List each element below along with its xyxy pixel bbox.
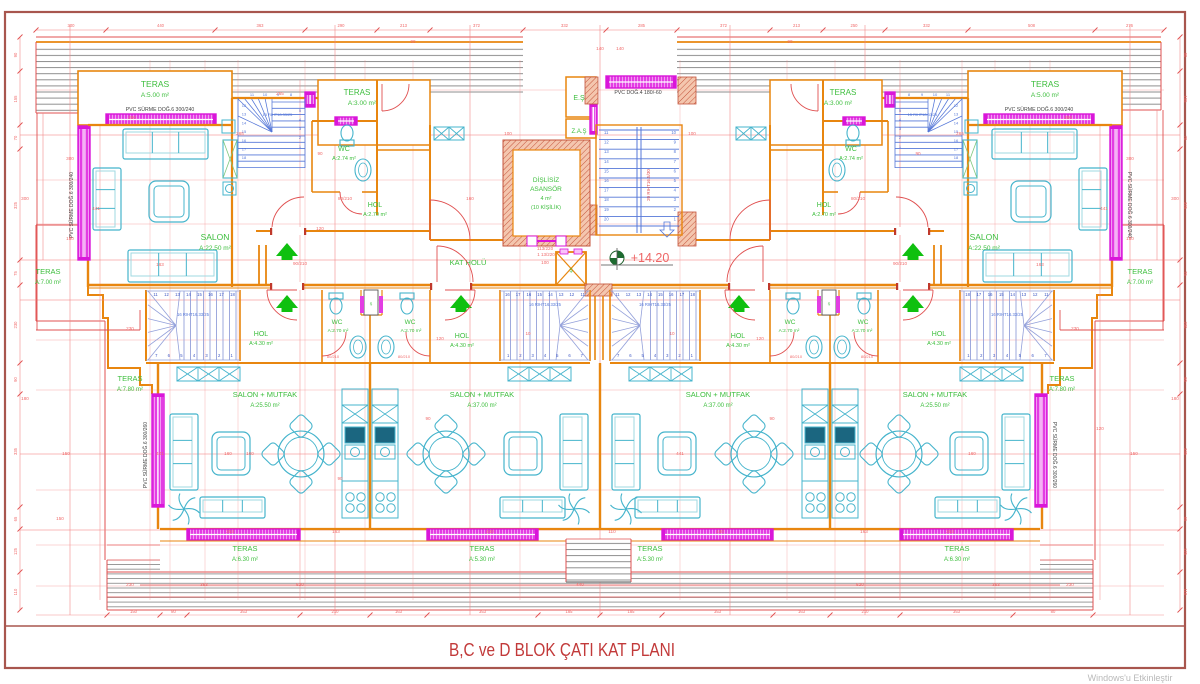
svg-text:180: 180 [21, 396, 29, 401]
svg-text:90: 90 [787, 39, 793, 44]
svg-text:353: 353 [946, 529, 954, 534]
svg-text:17: 17 [516, 292, 521, 297]
svg-text:325: 325 [13, 201, 18, 209]
svg-text:A:25.50 m²: A:25.50 m² [920, 403, 949, 409]
svg-text:16: 16 [527, 292, 532, 297]
svg-text:Windows'u Etkinleştir: Windows'u Etkinleştir [1088, 673, 1173, 683]
svg-text:440: 440 [576, 582, 584, 587]
svg-text:A:4.30 m²: A:4.30 m² [927, 341, 951, 347]
svg-text:TERAS: TERAS [469, 544, 494, 553]
svg-text:TERAS: TERAS [1049, 374, 1074, 383]
svg-text:A:3.00 m²: A:3.00 m² [824, 100, 853, 107]
svg-text:16: 16 [988, 292, 993, 297]
svg-text:125: 125 [1183, 548, 1188, 556]
svg-text:90: 90 [915, 151, 921, 156]
svg-text:300: 300 [1126, 156, 1134, 161]
svg-text:B,C ve D BLOK ÇATI KAT PLANI: B,C ve D BLOK ÇATI KAT PLANI [449, 639, 675, 660]
svg-text:A:3.00 m²: A:3.00 m² [348, 100, 377, 107]
svg-text:A:2.70 m²: A:2.70 m² [401, 328, 422, 334]
svg-text:14: 14 [604, 159, 609, 164]
svg-text:16 RIHT16.33/25: 16 RIHT16.33/25 [529, 302, 562, 307]
svg-text:10: 10 [263, 92, 268, 97]
svg-text:TERAS: TERAS [944, 544, 969, 553]
svg-text:A:5.00 m²: A:5.00 m² [1031, 92, 1060, 99]
svg-text:11: 11 [615, 292, 620, 297]
svg-text:90/210: 90/210 [893, 261, 907, 266]
svg-text:353: 353 [479, 609, 487, 614]
svg-text:HOL: HOL [932, 331, 947, 338]
svg-text:A:2.74 m²: A:2.74 m² [839, 156, 863, 162]
svg-text:A:5.30 m²: A:5.30 m² [637, 557, 663, 563]
svg-text:90/210: 90/210 [293, 261, 307, 266]
svg-text:A:25.50 m²: A:25.50 m² [250, 403, 279, 409]
svg-text:265: 265 [276, 91, 284, 96]
svg-text:HOL: HOL [731, 333, 746, 340]
svg-text:16 RIHT16.33/25: 16 RIHT16.33/25 [991, 312, 1024, 317]
svg-text:100: 100 [504, 131, 512, 136]
svg-text:A:2.70 m²: A:2.70 m² [852, 328, 873, 334]
svg-text:SALON: SALON [201, 232, 230, 242]
svg-text:TERAS: TERAS [344, 88, 371, 97]
svg-text:15: 15 [999, 292, 1004, 297]
svg-text:4 m²: 4 m² [541, 196, 552, 202]
svg-text:KAT HOLÜ: KAT HOLÜ [450, 258, 487, 267]
svg-text:110: 110 [608, 529, 616, 534]
svg-text:Ş: Ş [370, 301, 373, 306]
svg-text:353: 353 [200, 582, 208, 587]
svg-text:SALON + MUTFAK: SALON + MUTFAK [686, 390, 750, 399]
svg-text:HOL: HOL [254, 331, 269, 338]
svg-text:210: 210 [332, 609, 340, 614]
svg-text:PVC SÜRME DOĞ.6 300/240: PVC SÜRME DOĞ.6 300/240 [1126, 172, 1133, 238]
svg-text:160: 160 [246, 451, 254, 456]
svg-text:335: 335 [13, 447, 18, 455]
svg-text:80/210: 80/210 [861, 354, 874, 359]
svg-text:90: 90 [337, 476, 343, 481]
svg-text:A:7.00 m²: A:7.00 m² [1127, 280, 1153, 286]
svg-text:WC: WC [858, 319, 869, 326]
svg-text:353: 353 [226, 529, 234, 534]
svg-text:90: 90 [769, 416, 775, 421]
svg-text:163: 163 [798, 609, 806, 614]
svg-text:SALON + MUTFAK: SALON + MUTFAK [233, 390, 297, 399]
svg-text:213: 213 [793, 23, 801, 28]
svg-text:100: 100 [688, 131, 696, 136]
svg-text:150: 150 [1130, 451, 1138, 456]
svg-text:A:4.30 m²: A:4.30 m² [249, 341, 273, 347]
svg-text:353: 353 [714, 609, 722, 614]
svg-text:180: 180 [66, 236, 74, 241]
svg-text:230: 230 [126, 582, 134, 587]
svg-text:290: 290 [338, 23, 346, 28]
svg-text:10: 10 [525, 331, 531, 336]
svg-text:13: 13 [954, 112, 959, 117]
svg-text:15: 15 [658, 292, 663, 297]
svg-text:PVC SÜRME DOĞ.6 300/240: PVC SÜRME DOĞ.6 300/240 [1005, 106, 1074, 113]
svg-text:Z.A.Ş: Z.A.Ş [571, 129, 586, 135]
svg-text:75: 75 [13, 271, 18, 276]
svg-text:15: 15 [537, 292, 542, 297]
svg-text:250: 250 [851, 23, 859, 28]
svg-text:17: 17 [954, 147, 959, 152]
svg-text:16 RIHT16.33/25: 16 RIHT16.33/25 [639, 302, 672, 307]
svg-text:WC: WC [785, 319, 796, 326]
svg-text:90: 90 [317, 151, 323, 156]
svg-text:18: 18 [965, 292, 970, 297]
svg-text:Ş: Ş [828, 301, 831, 306]
svg-text:353: 353 [240, 609, 248, 614]
svg-text:155: 155 [13, 95, 18, 103]
svg-text:A:6.30 m²: A:6.30 m² [944, 557, 970, 563]
svg-text:WC: WC [332, 319, 343, 326]
svg-text:A:22.50 m²: A:22.50 m² [968, 245, 1001, 252]
svg-text:265: 265 [236, 131, 244, 136]
svg-text:332: 332 [561, 23, 569, 28]
svg-text:120: 120 [316, 226, 324, 231]
svg-text:16: 16 [669, 292, 674, 297]
svg-text:353: 353 [992, 582, 1000, 587]
svg-text:10: 10 [671, 130, 676, 135]
svg-text:10: 10 [933, 92, 938, 97]
svg-text:300: 300 [128, 115, 136, 120]
svg-text:75: 75 [1183, 271, 1188, 276]
svg-text:PVC DOĞ.4 180/-60: PVC DOĞ.4 180/-60 [614, 89, 661, 96]
svg-text:A:7.80 m²: A:7.80 m² [117, 387, 143, 393]
svg-text:230: 230 [1066, 582, 1074, 587]
svg-text:12: 12 [1033, 292, 1038, 297]
svg-text:65: 65 [13, 516, 18, 521]
svg-text:13: 13 [559, 292, 564, 297]
svg-text:11: 11 [153, 292, 158, 297]
svg-text:90: 90 [410, 39, 416, 44]
svg-text:13: 13 [1022, 292, 1027, 297]
svg-text:440: 440 [157, 23, 165, 28]
svg-text:160: 160 [224, 451, 232, 456]
svg-text:A:7.00 m²: A:7.00 m² [35, 280, 61, 286]
svg-text:210: 210 [862, 609, 870, 614]
svg-text:230: 230 [1071, 326, 1079, 331]
svg-text:HOL: HOL [817, 202, 832, 209]
svg-text:18: 18 [954, 155, 959, 160]
svg-text:163: 163 [156, 262, 164, 267]
svg-text:11: 11 [580, 292, 585, 297]
svg-text:12: 12 [570, 292, 575, 297]
svg-text:A:2.70 m²: A:2.70 m² [812, 212, 836, 218]
svg-text:19: 19 [604, 207, 609, 212]
svg-text:+14.20: +14.20 [631, 251, 670, 265]
svg-text:1 13/220: 1 13/220 [537, 252, 555, 257]
svg-text:15 RIHT18.33/25: 15 RIHT18.33/25 [908, 112, 938, 117]
svg-text:335: 335 [1183, 448, 1188, 456]
svg-text:A:5.00 m²: A:5.00 m² [141, 92, 170, 99]
svg-text:10: 10 [669, 331, 675, 336]
svg-text:11: 11 [1044, 292, 1049, 297]
svg-text:PVC SÜRME DOĞ.6 300/240: PVC SÜRME DOĞ.6 300/240 [68, 172, 75, 238]
svg-text:SALON + MUTFAK: SALON + MUTFAK [903, 390, 967, 399]
svg-text:14: 14 [548, 292, 553, 297]
svg-text:TERAS: TERAS [117, 374, 142, 383]
svg-text:17: 17 [977, 292, 982, 297]
svg-text:353: 353 [953, 609, 961, 614]
svg-text:80/210: 80/210 [398, 354, 411, 359]
svg-text:70: 70 [13, 135, 18, 140]
svg-text:TERAS: TERAS [141, 79, 170, 89]
svg-text:163: 163 [395, 609, 403, 614]
svg-text:300: 300 [66, 156, 74, 161]
svg-text:441: 441 [676, 451, 684, 456]
svg-text:140: 140 [616, 46, 624, 51]
svg-text:80/210: 80/210 [851, 196, 865, 201]
svg-text:18: 18 [604, 197, 609, 202]
svg-text:18: 18 [230, 292, 235, 297]
svg-text:110: 110 [13, 588, 18, 595]
svg-text:150: 150 [56, 516, 64, 521]
svg-text:160: 160 [968, 451, 976, 456]
svg-text:325: 325 [1183, 202, 1188, 210]
svg-text:A:22.50 m²: A:22.50 m² [199, 245, 232, 252]
svg-text:12: 12 [626, 292, 631, 297]
svg-text:15: 15 [604, 168, 609, 173]
svg-text:332: 332 [923, 23, 931, 28]
svg-text:14: 14 [242, 120, 247, 125]
svg-text:17: 17 [604, 188, 609, 193]
svg-text:16: 16 [954, 138, 959, 143]
svg-text:150: 150 [130, 609, 138, 614]
svg-text:17: 17 [680, 292, 685, 297]
svg-text:185: 185 [566, 609, 574, 614]
svg-text:125: 125 [13, 547, 18, 555]
svg-text:A:2.74 m²: A:2.74 m² [332, 156, 356, 162]
svg-text:A:4.30 m²: A:4.30 m² [726, 343, 750, 349]
svg-text:140: 140 [596, 46, 604, 51]
svg-text:440: 440 [716, 529, 724, 534]
svg-text:13: 13 [175, 292, 180, 297]
svg-text:14: 14 [954, 120, 959, 125]
svg-text:TERAS: TERAS [232, 544, 257, 553]
svg-text:16: 16 [505, 292, 510, 297]
svg-text:13: 13 [604, 149, 609, 154]
svg-text:15 RIHT18.33/25: 15 RIHT18.33/25 [263, 112, 293, 117]
svg-text:300: 300 [68, 23, 76, 28]
svg-text:PVC SÜRME DOĞ.6 300/240: PVC SÜRME DOĞ.6 300/240 [126, 106, 195, 113]
svg-text:300: 300 [1171, 196, 1179, 201]
svg-text:363: 363 [257, 23, 265, 28]
svg-text:90: 90 [425, 416, 431, 421]
svg-text:300: 300 [21, 196, 29, 201]
svg-text:180: 180 [1126, 236, 1134, 241]
svg-text:65: 65 [1183, 517, 1188, 522]
svg-text:230: 230 [13, 321, 18, 329]
svg-text:16: 16 [604, 178, 609, 183]
svg-text:160: 160 [466, 196, 474, 201]
svg-text:17: 17 [219, 292, 224, 297]
svg-text:80: 80 [171, 609, 176, 614]
svg-text:163: 163 [860, 529, 868, 534]
svg-text:113/220: 113/220 [537, 246, 554, 251]
svg-text:80/210: 80/210 [327, 354, 340, 359]
svg-text:265: 265 [956, 131, 964, 136]
svg-text:90: 90 [13, 52, 18, 57]
svg-text:PVC SÜRME DOĞ.6 300/260: PVC SÜRME DOĞ.6 300/260 [1051, 422, 1058, 488]
svg-text:520: 520 [856, 582, 864, 587]
svg-text:163: 163 [332, 529, 340, 534]
svg-text:A:4.30 m²: A:4.30 m² [450, 343, 474, 349]
svg-text:372: 372 [473, 23, 481, 28]
svg-text:11: 11 [604, 130, 609, 135]
svg-text:A:37.00 m²: A:37.00 m² [703, 403, 732, 409]
svg-text:SALON: SALON [970, 232, 999, 242]
svg-text:230: 230 [1183, 322, 1188, 330]
svg-text:13: 13 [637, 292, 642, 297]
svg-text:TERAS: TERAS [35, 267, 60, 276]
svg-text:120: 120 [1096, 426, 1104, 431]
svg-text:(10 KİŞİLİK): (10 KİŞİLİK) [531, 204, 561, 211]
svg-text:A:7.80 m²: A:7.80 m² [1049, 387, 1075, 393]
svg-text:90: 90 [13, 377, 18, 382]
svg-text:18: 18 [690, 292, 695, 297]
svg-text:20: 20 [604, 216, 609, 221]
svg-text:120: 120 [756, 336, 764, 341]
svg-text:TERAS: TERAS [637, 544, 662, 553]
svg-text:DİŞLİSİZ: DİŞLİSİZ [533, 175, 559, 184]
svg-text:16: 16 [208, 292, 213, 297]
svg-text:120: 120 [436, 336, 444, 341]
svg-text:70: 70 [1183, 136, 1188, 141]
svg-text:441: 441 [1100, 206, 1108, 211]
svg-text:TERAS: TERAS [1127, 267, 1152, 276]
svg-text:508: 508 [1028, 23, 1036, 28]
svg-text:155: 155 [1183, 96, 1188, 104]
svg-text:A:6.30 m²: A:6.30 m² [232, 557, 258, 563]
svg-text:16: 16 [242, 138, 247, 143]
svg-text:441: 441 [92, 206, 100, 211]
svg-text:12: 12 [604, 140, 609, 145]
svg-text:80/210: 80/210 [338, 196, 352, 201]
svg-text:15: 15 [197, 292, 202, 297]
svg-text:12: 12 [164, 292, 169, 297]
svg-text:12: 12 [954, 103, 959, 108]
svg-text:80/210: 80/210 [790, 354, 803, 359]
svg-text:520: 520 [296, 582, 304, 587]
svg-text:12: 12 [242, 103, 247, 108]
svg-text:A:37.00 m²: A:37.00 m² [467, 403, 496, 409]
svg-text:440: 440 [486, 529, 494, 534]
svg-text:180: 180 [1171, 396, 1179, 401]
svg-text:372: 372 [720, 23, 728, 28]
svg-text:E.Ş: E.Ş [573, 95, 585, 102]
svg-text:276: 276 [1126, 23, 1134, 28]
svg-text:WC: WC [405, 319, 416, 326]
svg-text:PVC SÜRME DOĞ.6 300/260: PVC SÜRME DOĞ.6 300/260 [142, 422, 149, 488]
svg-text:150: 150 [62, 451, 70, 456]
svg-text:20 RIHT16.5/30: 20 RIHT16.5/30 [646, 169, 651, 201]
svg-text:WC: WC [845, 146, 857, 153]
svg-text:14: 14 [1010, 292, 1015, 297]
svg-text:14: 14 [647, 292, 652, 297]
svg-text:TERAS: TERAS [830, 88, 857, 97]
svg-text:18: 18 [242, 155, 247, 160]
svg-text:285: 285 [638, 23, 646, 28]
svg-text:A:2.70 m²: A:2.70 m² [779, 328, 800, 334]
svg-text:230: 230 [126, 326, 134, 331]
svg-text:80: 80 [1051, 609, 1056, 614]
svg-text:A:5.30 m²: A:5.30 m² [469, 557, 495, 563]
svg-text:185: 185 [628, 609, 636, 614]
svg-text:WC: WC [338, 146, 350, 153]
svg-text:A:2.70 m²: A:2.70 m² [363, 212, 387, 218]
svg-text:SALON + MUTFAK: SALON + MUTFAK [450, 390, 514, 399]
svg-text:13: 13 [242, 112, 247, 117]
svg-text:ASANSÖR: ASANSÖR [530, 185, 562, 193]
svg-text:213: 213 [400, 23, 408, 28]
svg-text:441: 441 [156, 451, 164, 456]
svg-text:HOL: HOL [368, 202, 383, 209]
svg-text:14: 14 [186, 292, 191, 297]
svg-text:HOL: HOL [455, 333, 470, 340]
svg-text:110: 110 [1183, 589, 1188, 596]
svg-text:16 RIHT16.33/25: 16 RIHT16.33/25 [177, 312, 210, 317]
svg-text:300: 300 [1064, 115, 1072, 120]
svg-text:17: 17 [242, 147, 247, 152]
svg-text:TERAS: TERAS [1031, 79, 1060, 89]
svg-text:163: 163 [1036, 262, 1044, 267]
svg-text:100: 100 [541, 260, 549, 265]
svg-text:90: 90 [1183, 53, 1188, 58]
svg-text:90: 90 [1183, 377, 1188, 382]
